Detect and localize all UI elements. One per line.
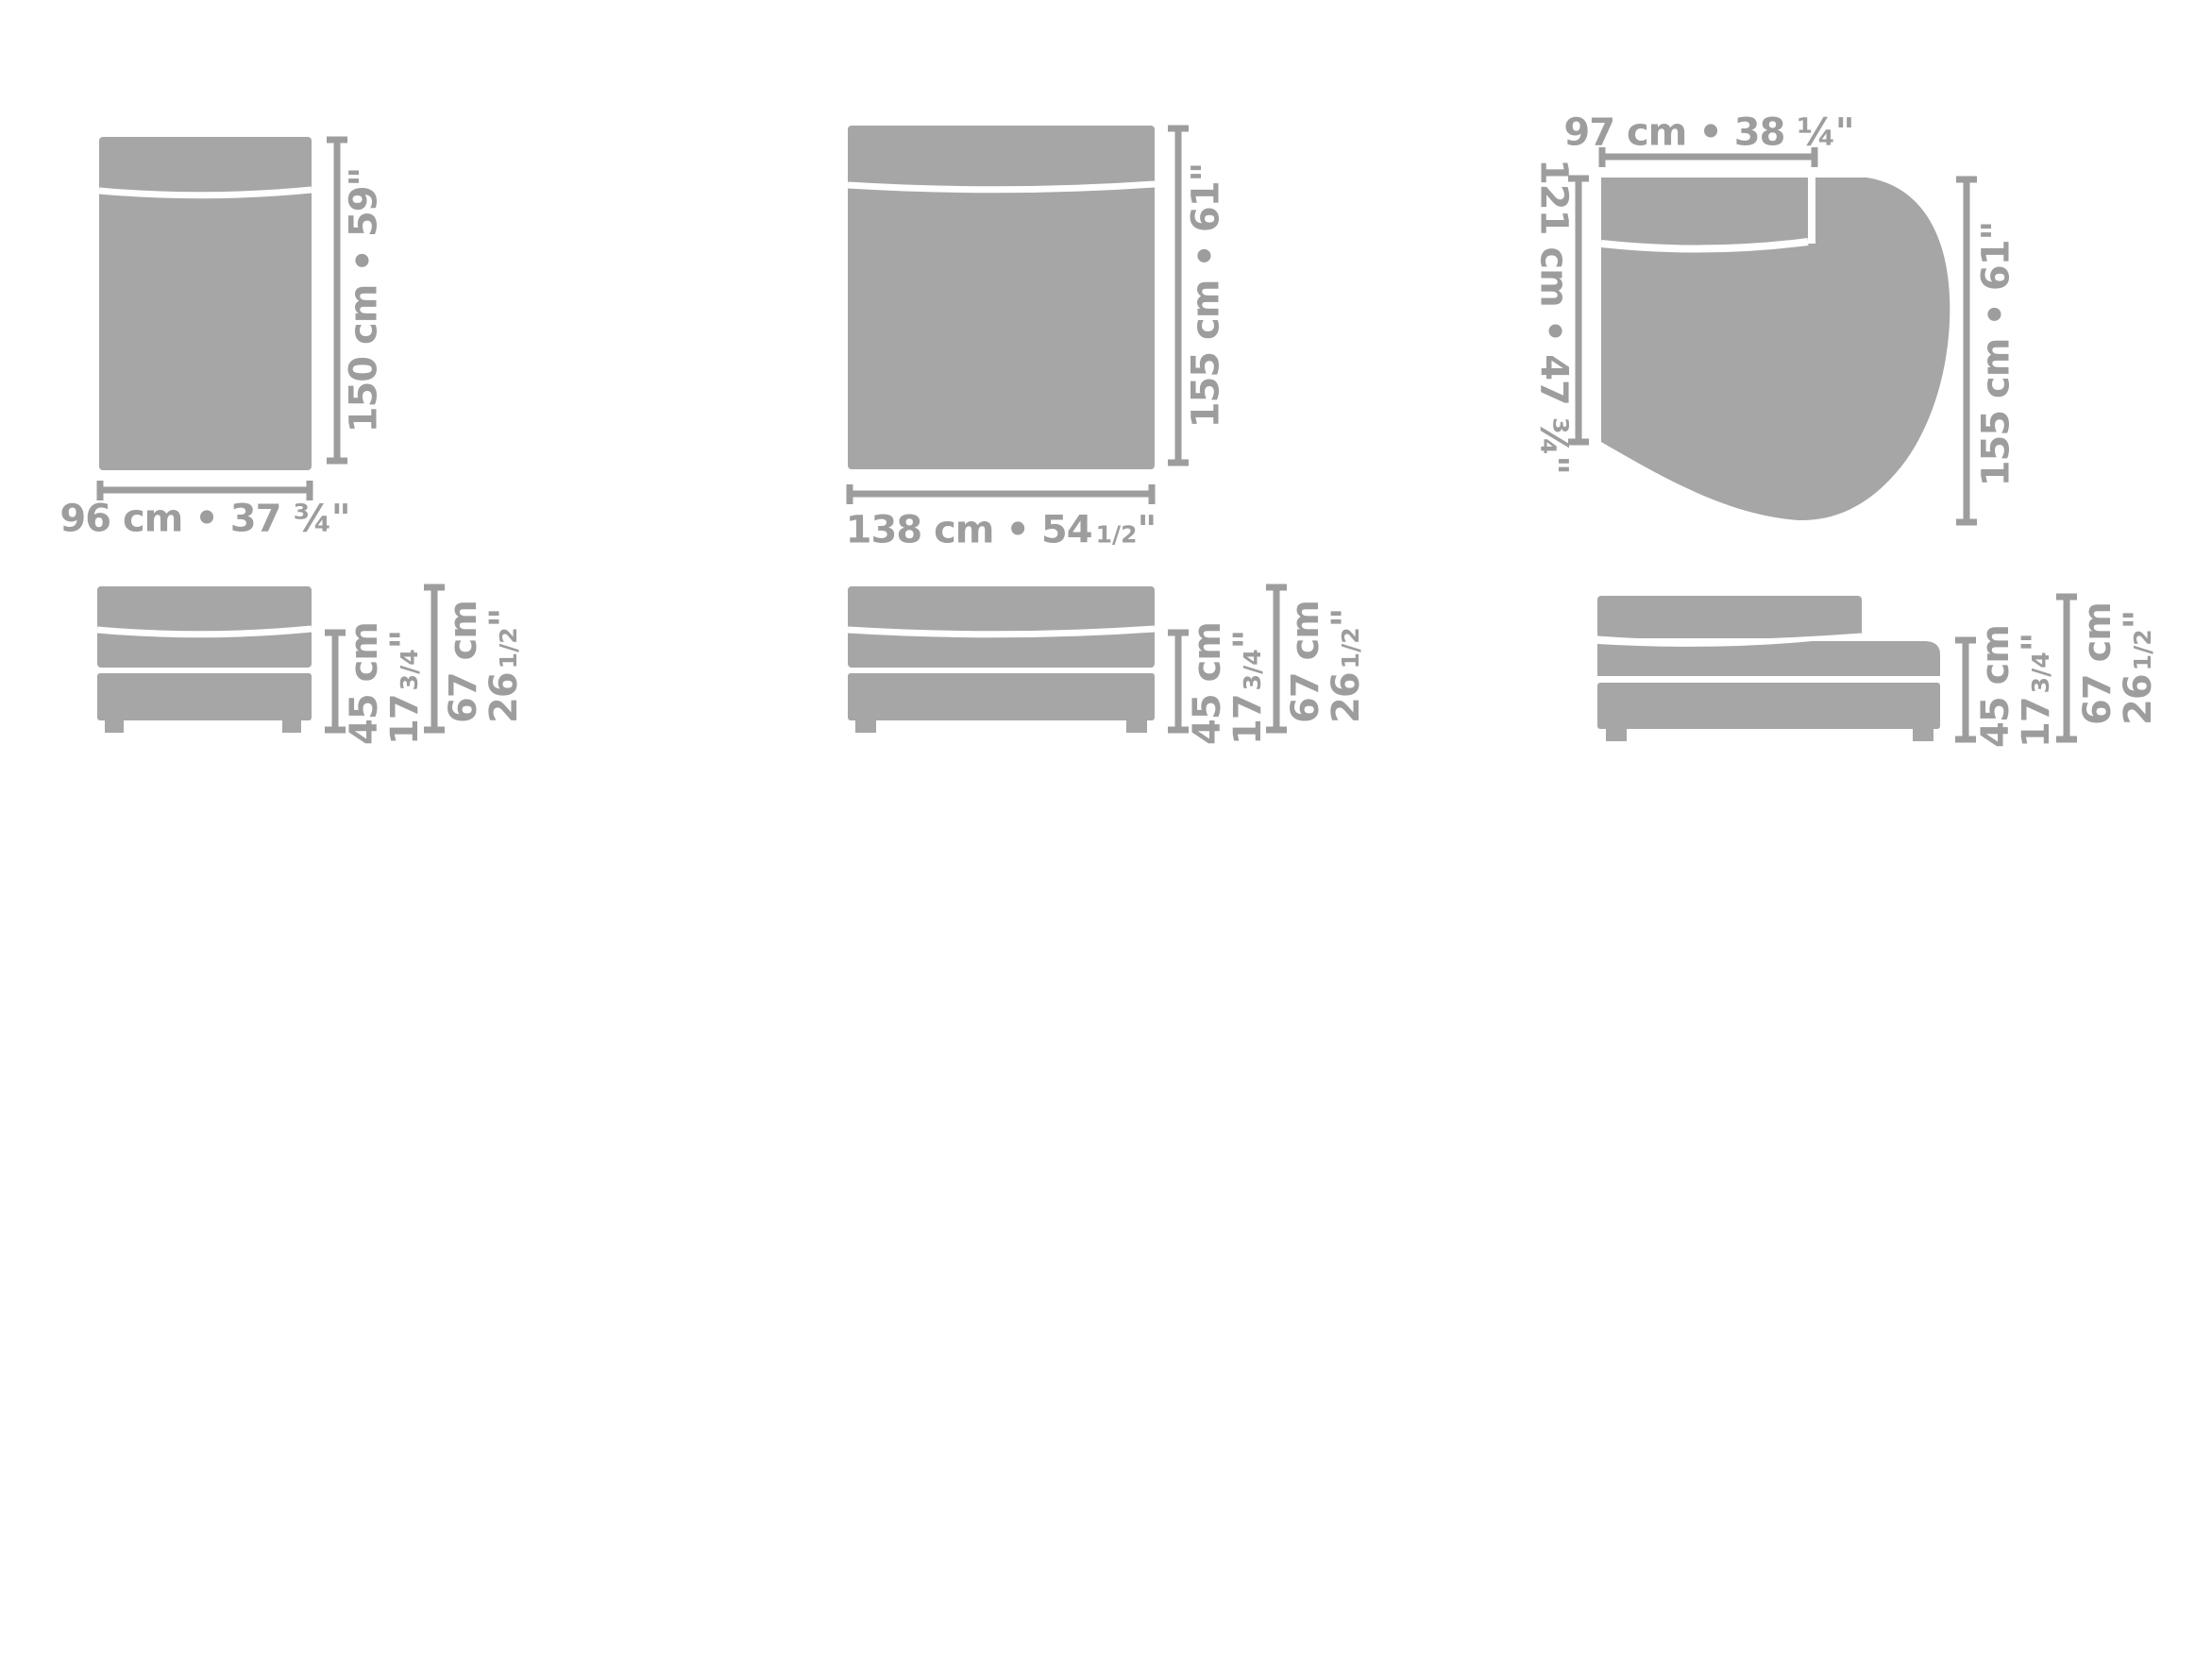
module-round-depth-label: 121 cm • 47 ¾" (1532, 159, 1573, 474)
seat-height-cm-label: 45 cm (345, 622, 385, 745)
module-round-front-left-foot (1606, 729, 1627, 741)
total-height-in-unit: " (2117, 611, 2160, 630)
module-96-front-base (97, 673, 312, 720)
module-96-height-label: 150 cm • 59" (344, 168, 384, 433)
seat-height-in-main: 17 (2015, 697, 2058, 748)
seat-height-in-unit: " (2015, 634, 2058, 652)
seat-height-cm-label: 45 cm (1976, 625, 2017, 748)
module-round-top-body (1601, 178, 1950, 520)
seat-height-cm-label: 45 cm (1188, 622, 1228, 745)
module-96-front-back-and-seat (97, 586, 312, 668)
module-138-front-left-foot (855, 720, 876, 733)
total-height-in-main: 26 (1325, 672, 1368, 723)
module-round-total-height-label: 67 cm 261/2" (2078, 602, 2159, 725)
module-round-seat-height-dimension-line (1955, 640, 1976, 739)
module-96-seat-height-label: 45 cm 173/4" (345, 622, 426, 745)
total-height-in-fraction: 1/2 (2129, 629, 2156, 670)
seat-height-in-fraction: 3/4 (1239, 649, 1266, 690)
module-138-width-label-unit: " (1137, 508, 1156, 551)
total-height-in-main: 26 (2117, 674, 2160, 725)
total-height-inches-label: 261/2" (1326, 601, 1367, 723)
total-height-in-unit: " (1325, 609, 1368, 628)
module-138-top-view (848, 126, 1155, 469)
module-138-height-label: 155 cm • 61" (1186, 163, 1226, 429)
module-96-top-body (99, 137, 312, 470)
module-138-front-back-and-seat (848, 586, 1155, 668)
seat-height-in-fraction: 3/4 (2027, 652, 2054, 693)
total-height-cm-label: 67 cm (2078, 602, 2119, 725)
module-96-front-right-foot (282, 720, 301, 733)
module-96-front-view (97, 586, 312, 733)
module-round-front-base (1597, 683, 1940, 729)
module-96-width-label: 96 cm • 37 ¾" (59, 499, 349, 539)
module-138-front-base (848, 673, 1155, 720)
module-round-total-height-dimension-line (2056, 597, 2077, 739)
diagram-shapes (0, 0, 2212, 1659)
module-96-total-height-label: 67 cm 261/2" (444, 601, 525, 723)
module-round-front-backrest (1597, 596, 1862, 638)
module-138-width-label-main: 138 cm • 54 (846, 508, 1092, 551)
module-round-length-label: 155 cm • 61" (1976, 222, 2017, 487)
module-138-top-body (848, 126, 1155, 469)
module-round-seat-height-label: 45 cm 173/4" (1976, 625, 2057, 748)
module-96-front-left-foot (105, 720, 124, 733)
total-height-in-unit: " (482, 609, 526, 628)
module-138-width-label-fraction: 1/2 (1096, 520, 1138, 548)
module-138-width-label: 138 cm • 541/2" (846, 510, 1157, 550)
module-round-top-view (1601, 178, 1950, 520)
total-height-cm-label: 67 cm (444, 601, 484, 723)
total-height-in-fraction: 1/2 (1337, 627, 1364, 669)
seat-height-in-main: 17 (383, 694, 427, 745)
module-138-width-dimension-line (850, 484, 1152, 504)
seat-height-in-unit: " (383, 631, 427, 650)
module-138-front-right-foot (1126, 720, 1147, 733)
total-height-inches-label: 261/2" (484, 601, 525, 723)
module-round-front-right-foot (1913, 729, 1933, 741)
seat-height-in-unit: " (1226, 631, 1270, 650)
total-height-in-fraction: 1/2 (495, 627, 522, 669)
total-height-in-main: 26 (482, 672, 526, 723)
seat-height-inches-label: 173/4" (2017, 625, 2057, 748)
module-138-total-height-label: 67 cm 261/2" (1286, 601, 1367, 723)
module-138-front-view (848, 586, 1155, 733)
furniture-dimension-diagram: 150 cm • 59" 96 cm • 37 ¾" 155 cm • 61" … (0, 0, 2212, 1659)
module-round-front-seat (1597, 641, 1940, 676)
module-96-top-view (99, 137, 312, 470)
seat-height-in-fraction: 3/4 (396, 649, 423, 690)
module-138-seat-height-label: 45 cm 173/4" (1188, 622, 1269, 745)
module-round-backrest-width-label: 97 cm • 38 ¼" (1563, 112, 1853, 153)
seat-height-inches-label: 173/4" (385, 622, 426, 745)
total-height-inches-label: 261/2" (2119, 602, 2159, 725)
module-round-front-view (1597, 596, 1940, 741)
total-height-cm-label: 67 cm (1286, 601, 1326, 723)
seat-height-inches-label: 173/4" (1228, 622, 1269, 745)
seat-height-in-main: 17 (1226, 694, 1270, 745)
